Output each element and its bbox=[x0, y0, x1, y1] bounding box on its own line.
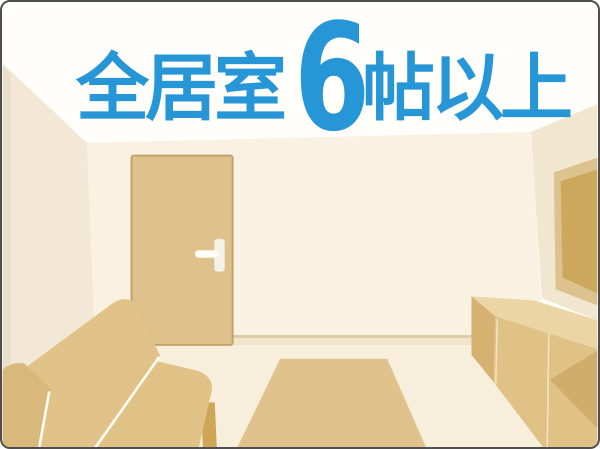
door bbox=[132, 156, 233, 345]
room-scene bbox=[2, 2, 598, 447]
ceiling bbox=[3, 2, 598, 143]
left-wall-edge-shade bbox=[3, 65, 11, 390]
wall-panel-screen bbox=[561, 169, 598, 293]
room-illustration: 全居室 6 帖以上 bbox=[0, 0, 600, 449]
wall-panel bbox=[554, 158, 598, 306]
door-handle-icon bbox=[195, 250, 219, 257]
